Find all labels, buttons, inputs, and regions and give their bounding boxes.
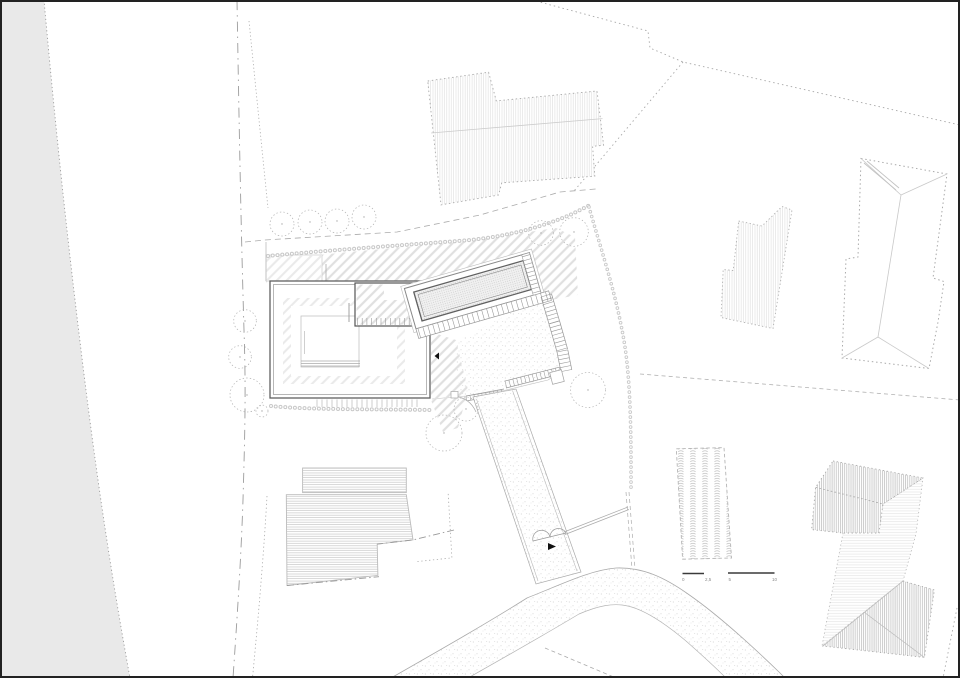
svg-text:2,5: 2,5 [705, 577, 712, 582]
svg-text:10: 10 [772, 577, 778, 582]
